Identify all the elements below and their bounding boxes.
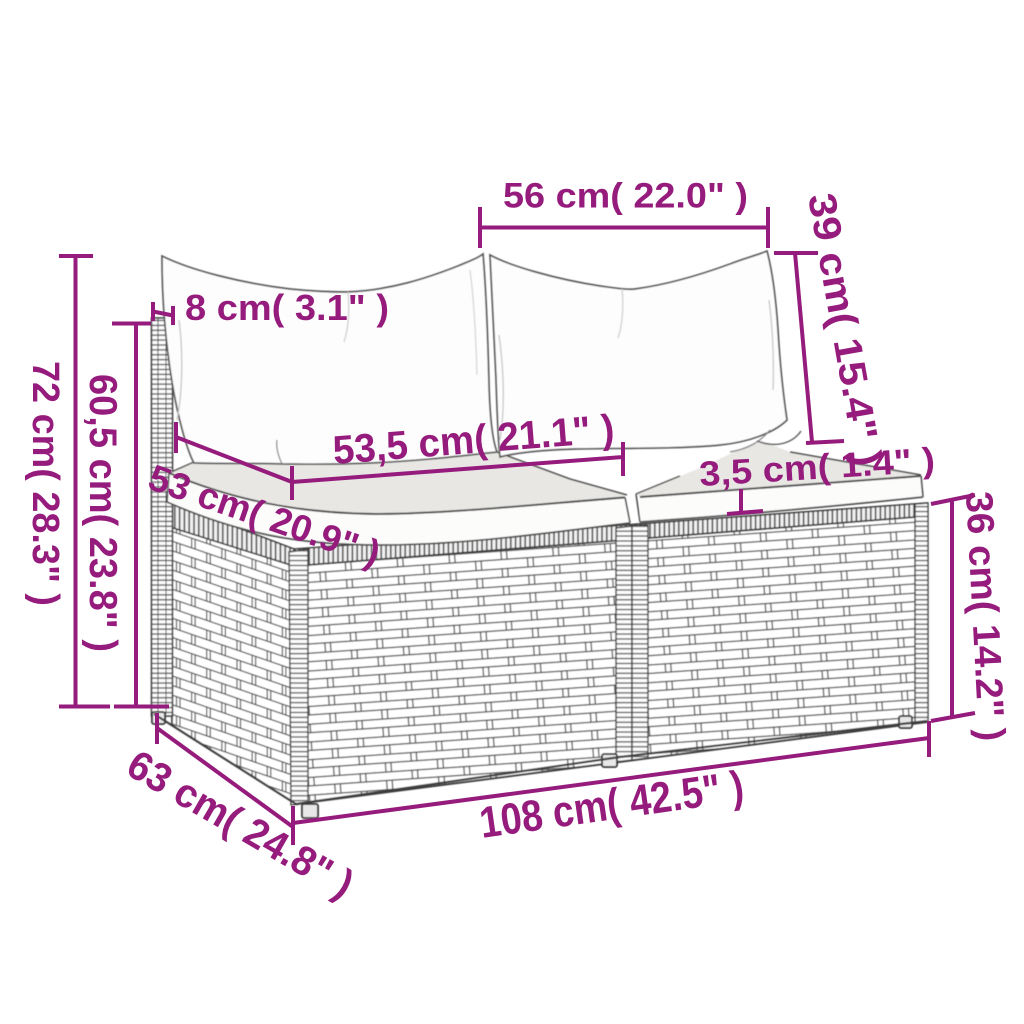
svg-text:60,5 cm( 23.8" ): 60,5 cm( 23.8" )	[81, 374, 124, 652]
svg-text:72 cm( 28.3" ): 72 cm( 28.3" )	[24, 361, 66, 606]
svg-text:56 cm( 22.0" ): 56 cm( 22.0" )	[503, 177, 748, 216]
svg-text:8 cm( 3.1" ): 8 cm( 3.1" )	[185, 287, 389, 328]
